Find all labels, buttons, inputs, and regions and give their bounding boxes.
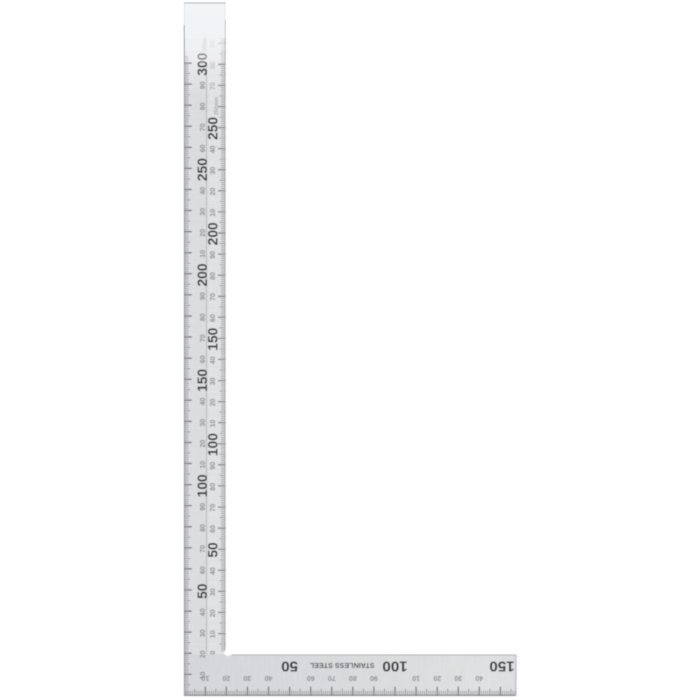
svg-text:20: 20 [222, 674, 230, 681]
svg-text:40: 40 [210, 567, 217, 575]
svg-text:90: 90 [200, 81, 207, 89]
svg-text:90: 90 [200, 292, 207, 300]
svg-text:10: 10 [210, 420, 217, 428]
svg-text:30: 30 [210, 377, 217, 385]
svg-text:80: 80 [210, 483, 217, 491]
svg-text:70: 70 [209, 82, 217, 90]
svg-text:30: 30 [200, 629, 207, 637]
svg-text:30: 30 [454, 674, 462, 681]
svg-text:30: 30 [200, 419, 207, 427]
svg-text:10: 10 [201, 674, 209, 681]
svg-text:250: 250 [206, 117, 221, 140]
svg-text:60: 60 [200, 145, 207, 153]
svg-text:150: 150 [489, 658, 514, 675]
svg-text:100: 100 [195, 474, 210, 497]
svg-text:30: 30 [210, 167, 217, 175]
svg-text:90: 90 [210, 462, 217, 470]
svg-text:60: 60 [210, 314, 217, 322]
svg-text:0: 0 [210, 651, 217, 655]
svg-text:100: 100 [206, 433, 221, 456]
svg-text:70: 70 [328, 674, 336, 681]
svg-text:50: 50 [281, 658, 298, 675]
svg-text:90: 90 [200, 503, 207, 511]
svg-text:40: 40 [210, 146, 217, 154]
svg-text:80: 80 [200, 313, 207, 321]
svg-text:150: 150 [195, 369, 210, 392]
svg-text:20: 20 [210, 188, 217, 196]
svg-text:90: 90 [370, 674, 378, 681]
svg-text:80: 80 [200, 524, 207, 532]
svg-text:30: 30 [243, 674, 251, 681]
svg-text:STAINLESS STEEL: STAINLESS STEEL [309, 661, 374, 670]
svg-text:20: 20 [433, 674, 441, 681]
svg-text:10: 10 [412, 674, 420, 681]
svg-text:70: 70 [210, 504, 217, 512]
svg-text:50: 50 [195, 583, 210, 599]
svg-text:20: 20 [210, 398, 217, 406]
svg-text:40: 40 [200, 187, 207, 195]
svg-text:60: 60 [200, 566, 207, 574]
svg-text:20: 20 [200, 650, 207, 658]
svg-text:40: 40 [210, 356, 217, 364]
svg-text:10: 10 [200, 461, 207, 469]
svg-text:50: 50 [206, 542, 221, 558]
svg-text:150: 150 [206, 327, 221, 350]
svg-text:30: 30 [210, 588, 217, 596]
svg-text:200: 200 [206, 222, 221, 245]
svg-text:60: 60 [200, 355, 207, 363]
svg-text:40: 40 [200, 398, 207, 406]
svg-text:250mm: 250mm [214, 97, 220, 115]
svg-text:200: 200 [195, 263, 210, 286]
svg-text:40: 40 [200, 608, 207, 616]
svg-text:90: 90 [210, 251, 217, 259]
svg-text:10: 10 [210, 209, 217, 217]
svg-text:80: 80 [210, 272, 217, 280]
svg-text:20: 20 [210, 609, 217, 617]
svg-text:10: 10 [210, 630, 217, 638]
svg-text:40: 40 [475, 674, 483, 681]
svg-text:30: 30 [200, 208, 207, 216]
svg-text:80: 80 [349, 674, 357, 681]
svg-text:40: 40 [265, 674, 273, 681]
svg-text:250: 250 [195, 158, 210, 181]
svg-text:60: 60 [210, 525, 217, 533]
svg-text:10: 10 [200, 250, 207, 258]
svg-text:80: 80 [200, 102, 207, 110]
svg-text:100: 100 [382, 658, 407, 675]
svg-text:60: 60 [307, 674, 315, 681]
svg-text:70: 70 [210, 293, 217, 301]
